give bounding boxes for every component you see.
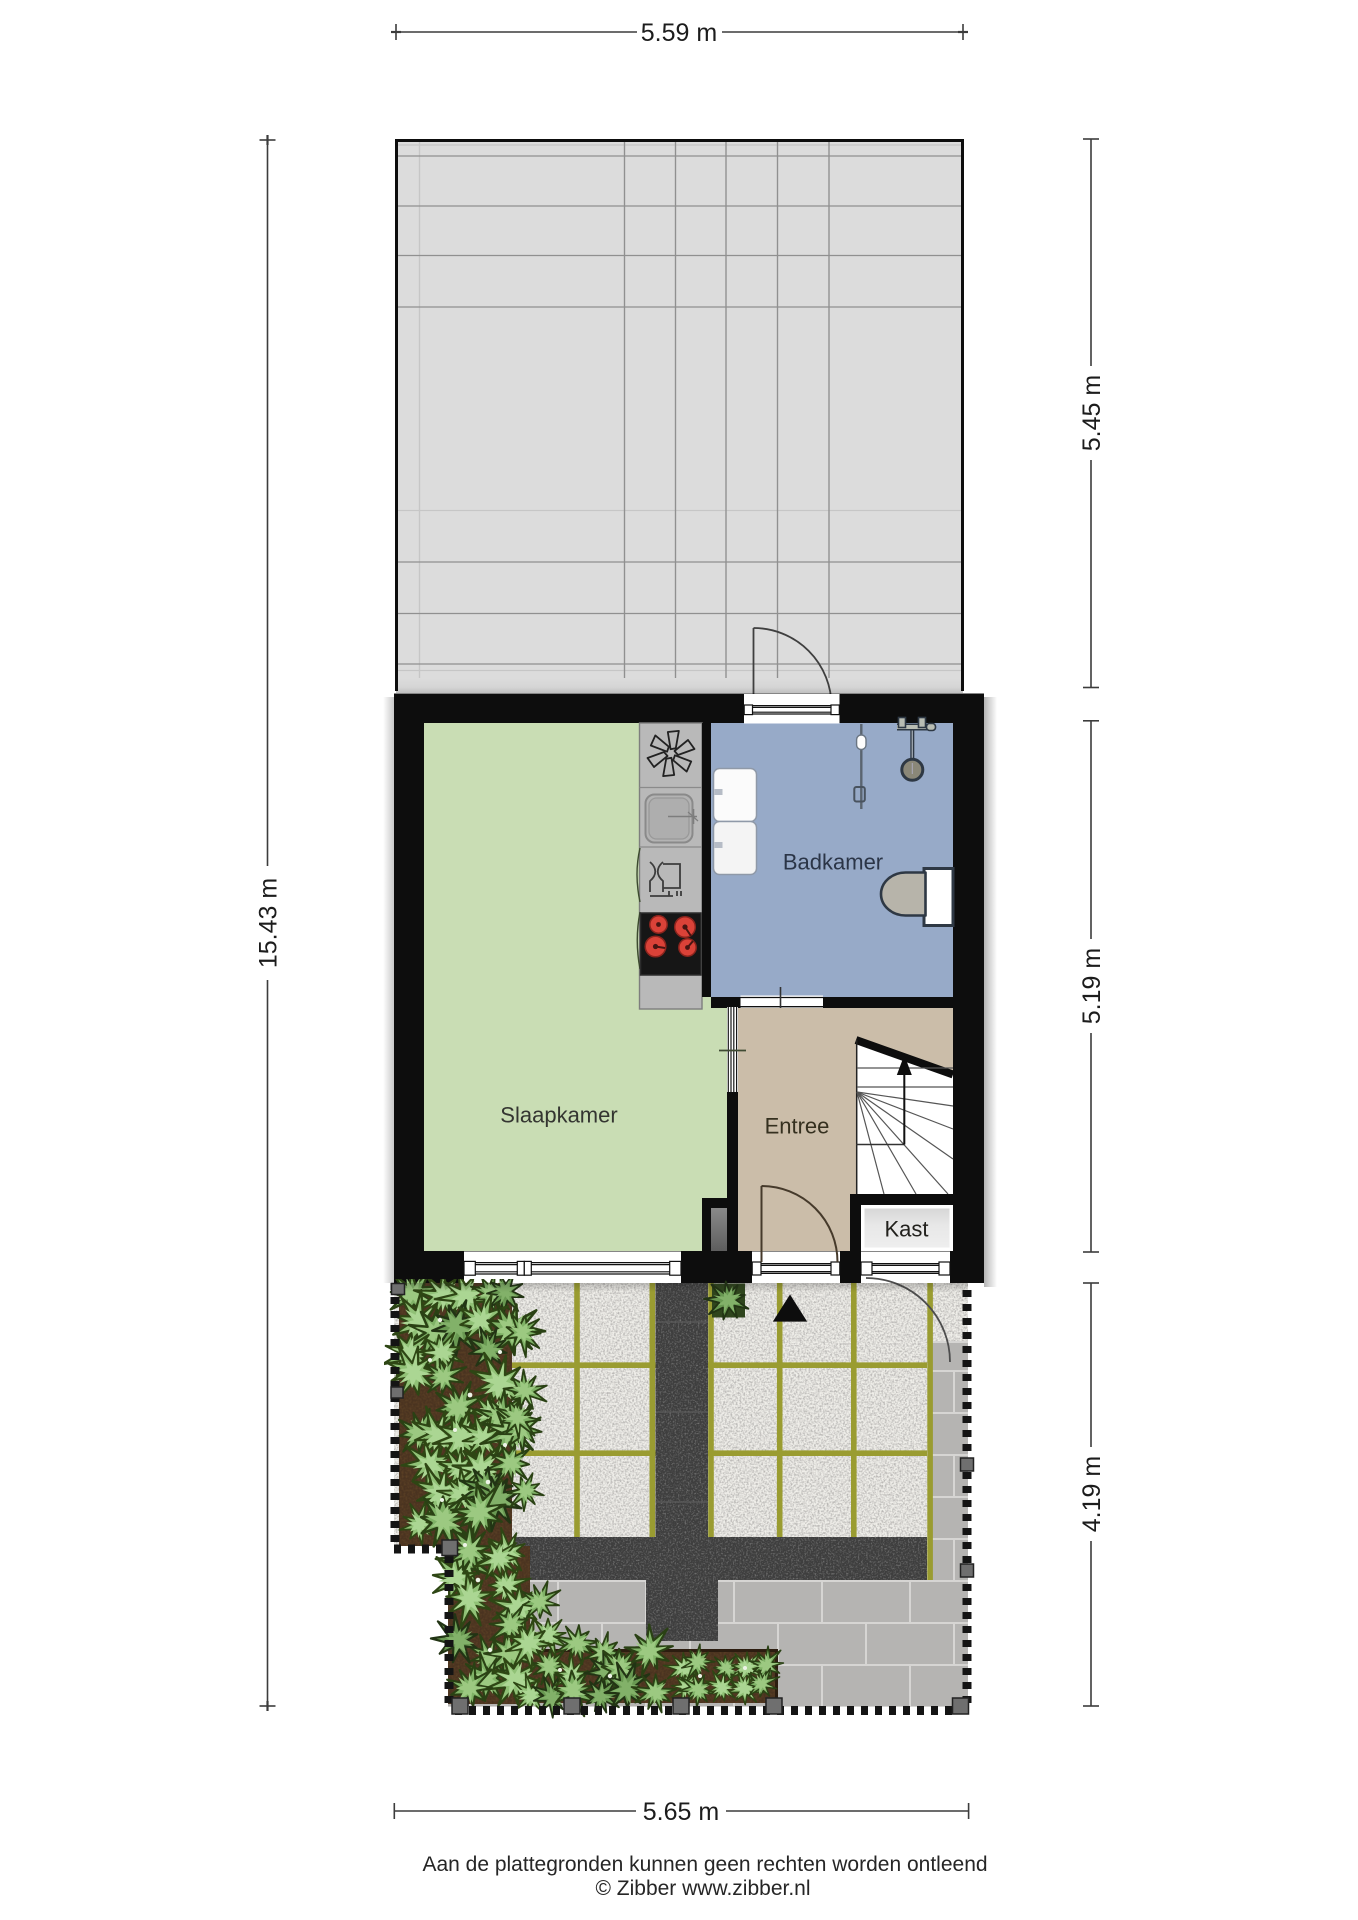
svg-text:5.19 m: 5.19 m xyxy=(1078,948,1106,1024)
svg-text:Kast: Kast xyxy=(884,1217,928,1242)
svg-text:5.65 m: 5.65 m xyxy=(643,1798,719,1826)
svg-text:Badkamer: Badkamer xyxy=(783,850,883,875)
svg-text:© Zibber www.zibber.nl: © Zibber www.zibber.nl xyxy=(595,1877,810,1900)
svg-text:Entree: Entree xyxy=(765,1114,830,1139)
svg-text:Aan de plattegronden kunnen ge: Aan de plattegronden kunnen geen rechten… xyxy=(422,1853,987,1876)
svg-text:Slaapkamer: Slaapkamer xyxy=(500,1103,617,1128)
svg-text:5.59 m: 5.59 m xyxy=(641,19,717,47)
svg-text:15.43 m: 15.43 m xyxy=(255,878,283,968)
svg-text:4.19 m: 4.19 m xyxy=(1078,1456,1106,1532)
svg-text:5.45 m: 5.45 m xyxy=(1078,375,1106,451)
